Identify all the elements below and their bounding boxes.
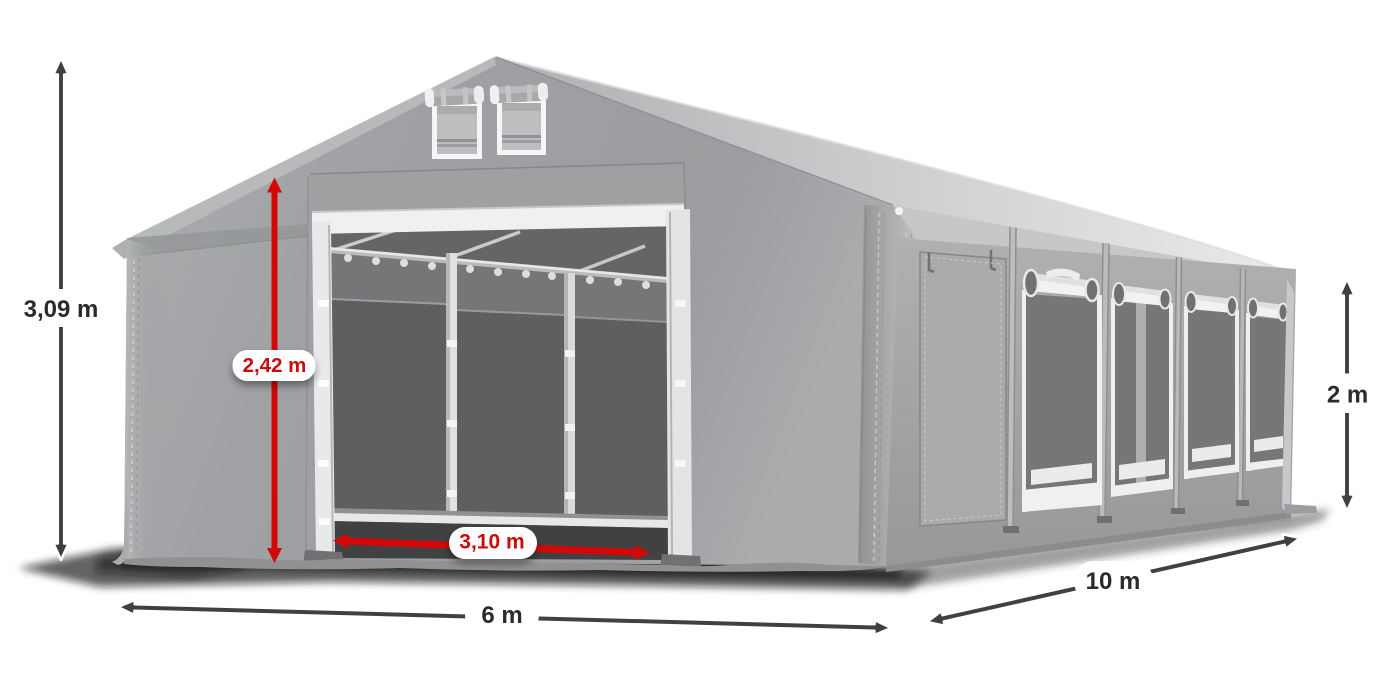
svg-text:3,10 m: 3,10 m (459, 531, 524, 554)
svg-text:2,42 m: 2,42 m (243, 354, 307, 377)
svg-text:6 m: 6 m (481, 602, 522, 629)
svg-text:10 m: 10 m (1086, 568, 1141, 595)
svg-text:2 m: 2 m (1327, 382, 1368, 409)
svg-text:3,09 m: 3,09 m (24, 296, 99, 323)
